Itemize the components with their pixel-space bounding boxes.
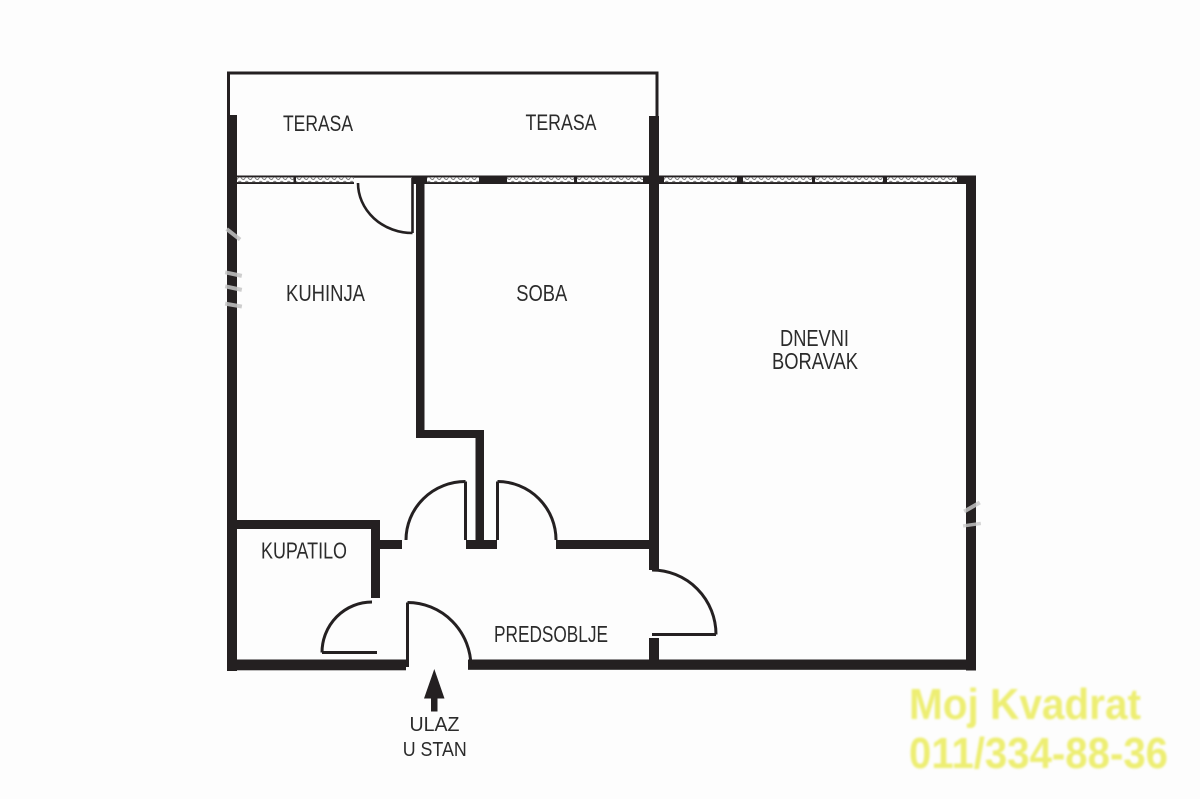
svg-text:PREDSOBLJE: PREDSOBLJE: [494, 621, 608, 647]
svg-text:KUHINJA: KUHINJA: [286, 280, 366, 306]
svg-text:Moj Kvadrat: Moj Kvadrat: [909, 680, 1141, 729]
svg-text:TERASA: TERASA: [283, 111, 353, 136]
svg-text:KUPATILO: KUPATILO: [261, 538, 347, 564]
svg-text:ULAZ: ULAZ: [410, 714, 460, 736]
svg-text:SOBA: SOBA: [516, 280, 568, 306]
svg-text:BORAVAK: BORAVAK: [772, 348, 859, 374]
svg-text:U STAN: U STAN: [403, 739, 467, 761]
svg-text:011/334-88-36: 011/334-88-36: [909, 729, 1168, 778]
svg-text:TERASA: TERASA: [526, 110, 597, 135]
